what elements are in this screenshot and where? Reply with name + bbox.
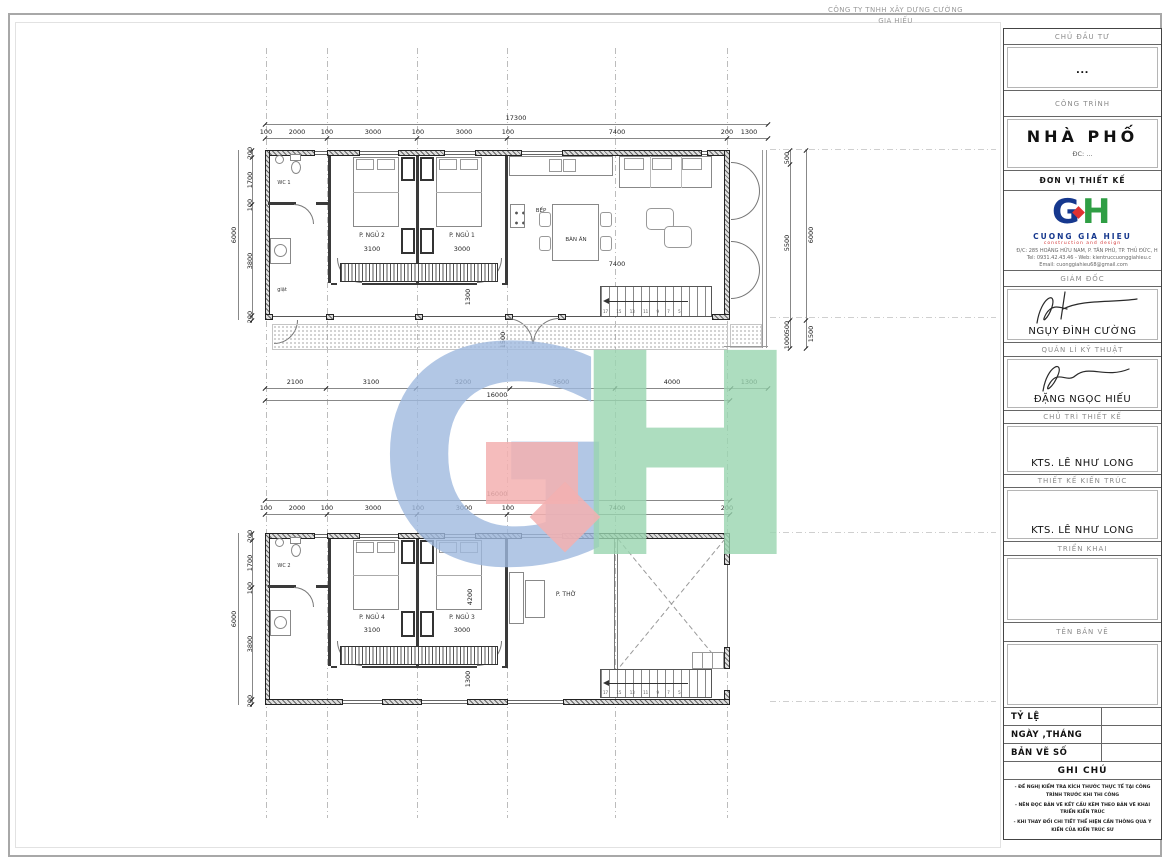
design-firm-tagline: construction and design xyxy=(1004,241,1161,246)
door-arc xyxy=(294,587,314,607)
drawing-number-value xyxy=(1102,744,1161,761)
wall-segment xyxy=(382,699,422,705)
dim-label: 1300 xyxy=(464,671,472,688)
dim-label: 7400 xyxy=(609,504,626,512)
wardrobe-icon xyxy=(401,540,415,564)
date-row: NGÀY ,THÁNG xyxy=(1004,726,1161,744)
partition-wall xyxy=(331,666,337,668)
project-label: CÔNG TRÌNH xyxy=(1004,91,1161,117)
title-block: CHỦ ĐẦU TƯ ... CÔNG TRÌNH NHÀ PHỐ ĐC: ..… xyxy=(1003,28,1162,840)
drawing-name-label-text: TÊN BẢN VẼ xyxy=(1056,628,1108,636)
void-cross xyxy=(618,539,725,669)
note-item: - KHI THAY ĐỔI CHI TIẾT THỂ HIỆN CẦN THÔ… xyxy=(1004,818,1161,836)
wall-segment xyxy=(265,699,343,705)
dim-label: 3100 xyxy=(364,626,381,634)
lead-designer-box: KTS. LÊ NHƯ LONG xyxy=(1004,424,1161,475)
toilet-icon xyxy=(291,544,301,557)
scale-row: TỶ LỆ xyxy=(1004,708,1161,726)
project-label-text: CÔNG TRÌNH xyxy=(1055,100,1110,108)
deployment-box-inner xyxy=(1007,558,1158,620)
design-firm-company: CUONG GIA HIEU xyxy=(1004,232,1161,241)
pillow-icon xyxy=(460,542,478,553)
dim-label: 4200 xyxy=(466,589,474,606)
sink-icon xyxy=(275,538,284,547)
wardrobe-icon xyxy=(401,611,415,637)
stair-landing xyxy=(692,652,724,669)
design-firm-label-text: ĐƠN VỊ THIẾT KẾ xyxy=(1040,176,1126,185)
deployment-box xyxy=(1004,556,1161,623)
wall-segment xyxy=(398,533,445,539)
pillow-icon xyxy=(439,542,457,553)
stair-step-numbers: 17 15 13 11 9 7 5 xyxy=(603,690,681,695)
drawing-number-label: BẢN VẼ SỐ xyxy=(1004,744,1102,761)
dim-label: 100 xyxy=(321,504,333,512)
drawing-sheet: CÔNG TY TNHH XÂY DỰNG CƯỜNG GIA HIẾU 173… xyxy=(0,0,1170,862)
room-label-wc2: WC 2 xyxy=(277,563,290,569)
partition-wall xyxy=(328,539,331,666)
technical-manager-box: ĐẶNG NGỌC HIẾU xyxy=(1004,357,1161,411)
design-firm-box: G H CUONG GIA HIEU construction and desi… xyxy=(1004,191,1161,271)
wall-segment xyxy=(327,533,360,539)
partition-wall xyxy=(316,585,329,588)
date-label: NGÀY ,THÁNG xyxy=(1004,726,1102,743)
design-firm-address: Đ/C: 285 HOÀNG HỮU NAM, P. TÂN PHÚ, TP. … xyxy=(982,248,1170,254)
architect-label: THIẾT KẾ KIẾN TRÚC xyxy=(1004,475,1161,488)
dim-label: 1700 xyxy=(246,555,254,572)
company-header: CÔNG TY TNHH XÂY DỰNG CƯỜNG GIA HIẾU xyxy=(788,5,1003,26)
scale-value xyxy=(1102,708,1161,725)
room-label-bedroom4: P. NGỦ 4 xyxy=(359,614,385,621)
dim-label: 3000 xyxy=(365,504,382,512)
notes-box: - ĐỀ NGHỊ KIỂM TRA KÍCH THƯỚC THỰC TẾ TẠ… xyxy=(1004,780,1161,839)
design-firm-telweb: Tel: 0931.42.43.46 - Web: kientruccuongg… xyxy=(994,255,1170,261)
note-item: - ĐỀ NGHỊ KIỂM TRA KÍCH THƯỚC THỰC TẾ TẠ… xyxy=(1004,783,1161,801)
date-value xyxy=(1102,726,1161,743)
investor-label: CHỦ ĐẦU TƯ xyxy=(1004,29,1161,45)
pillow-icon xyxy=(377,542,395,553)
architect-label-text: THIẾT KẾ KIẾN TRÚC xyxy=(1038,477,1127,485)
technical-manager-name: ĐẶNG NGỌC HIẾU xyxy=(1004,394,1161,405)
notes-header: GHI CHÚ xyxy=(1004,762,1161,780)
wall-segment xyxy=(563,699,730,705)
technical-manager-signature xyxy=(1019,359,1149,395)
wall-segment xyxy=(467,699,508,705)
company-header-line2: GIA HIẾU xyxy=(788,16,1003,27)
dim-label: 3000 xyxy=(454,626,471,634)
drawing-number-row: BẢN VẼ SỐ xyxy=(1004,744,1161,762)
project-name: NHÀ PHỐ xyxy=(1004,127,1161,146)
project-box: NHÀ PHỐ ĐC: ... xyxy=(1004,117,1161,171)
dim-label: 3000 xyxy=(456,504,473,512)
deployment-label: TRIỂN KHAI xyxy=(1004,542,1161,556)
investor-value: ... xyxy=(1004,65,1161,76)
dim-label: 2000 xyxy=(289,504,306,512)
drawing-name-box-inner xyxy=(1007,644,1158,705)
design-firm-email: Email: cuonggiahieu68@gmail.com xyxy=(1004,262,1163,268)
partition-wall xyxy=(268,585,296,588)
dim-label: 6000 xyxy=(230,611,238,628)
design-firm-logo: G H xyxy=(1004,193,1161,233)
partition-wall xyxy=(362,666,477,668)
project-address: ĐC: ... xyxy=(1004,150,1161,158)
deployment-label-text: TRIỂN KHAI xyxy=(1058,545,1108,553)
washer-icon xyxy=(274,616,287,629)
director-label-text: GIÁM ĐỐC xyxy=(1060,275,1104,283)
drawing-name-label: TÊN BẢN VẼ xyxy=(1004,623,1161,642)
director-signature xyxy=(1019,289,1149,327)
partition-wall xyxy=(505,539,508,666)
logo-letter-h: H xyxy=(1082,193,1110,231)
director-box: NGỤY ĐÌNH CƯỜNG xyxy=(1004,287,1161,343)
closet-strip xyxy=(340,646,498,665)
lead-designer-label: CHỦ TRÌ THIẾT KẾ xyxy=(1004,411,1161,424)
altar-cabinet xyxy=(509,572,524,624)
dim-label: 16000 xyxy=(487,490,508,498)
director-label: GIÁM ĐỐC xyxy=(1004,271,1161,287)
pillow-icon xyxy=(356,542,374,553)
architect-name: KTS. LÊ NHƯ LONG xyxy=(1004,525,1161,536)
partition-wall xyxy=(502,666,508,668)
toilet-icon xyxy=(290,537,301,544)
scale-label: TỶ LỆ xyxy=(1004,708,1102,725)
director-name: NGỤY ĐÌNH CƯỜNG xyxy=(1004,326,1161,337)
lead-designer-name: KTS. LÊ NHƯ LONG xyxy=(1004,458,1161,469)
drawing-name-box xyxy=(1004,642,1161,708)
technical-manager-label: QUẢN LÍ KỸ THUẬT xyxy=(1004,343,1161,357)
wardrobe-icon xyxy=(420,540,434,564)
altar-table xyxy=(525,580,545,618)
room-label-bedroom3: P. NGỦ 3 xyxy=(449,614,475,621)
company-header-line1: CÔNG TY TNHH XÂY DỰNG CƯỜNG xyxy=(788,5,1003,16)
architect-box: KTS. LÊ NHƯ LONG xyxy=(1004,488,1161,542)
lead-designer-label-text: CHỦ TRÌ THIẾT KẾ xyxy=(1043,413,1121,421)
notes-header-text: GHI CHÚ xyxy=(1058,766,1108,776)
investor-label-text: CHỦ ĐẦU TƯ xyxy=(1055,33,1110,41)
technical-manager-label-text: QUẢN LÍ KỸ THUẬT xyxy=(1042,346,1124,354)
wardrobe-icon xyxy=(420,611,434,637)
design-firm-label: ĐƠN VỊ THIẾT KẾ xyxy=(1004,171,1161,191)
investor-box: ... xyxy=(1004,45,1161,91)
wall-segment xyxy=(475,533,522,539)
dim-label: 3800 xyxy=(246,636,254,653)
floor-plan-lower: 16000 100 2000 100 3000 100 3000 100 740… xyxy=(0,0,1170,862)
note-item: - NÊN ĐỌC BẢN VẼ KẾT CẤU KÈM THEO BẢN VẼ… xyxy=(1004,801,1161,819)
room-label-worship: P. THỜ xyxy=(556,591,576,598)
